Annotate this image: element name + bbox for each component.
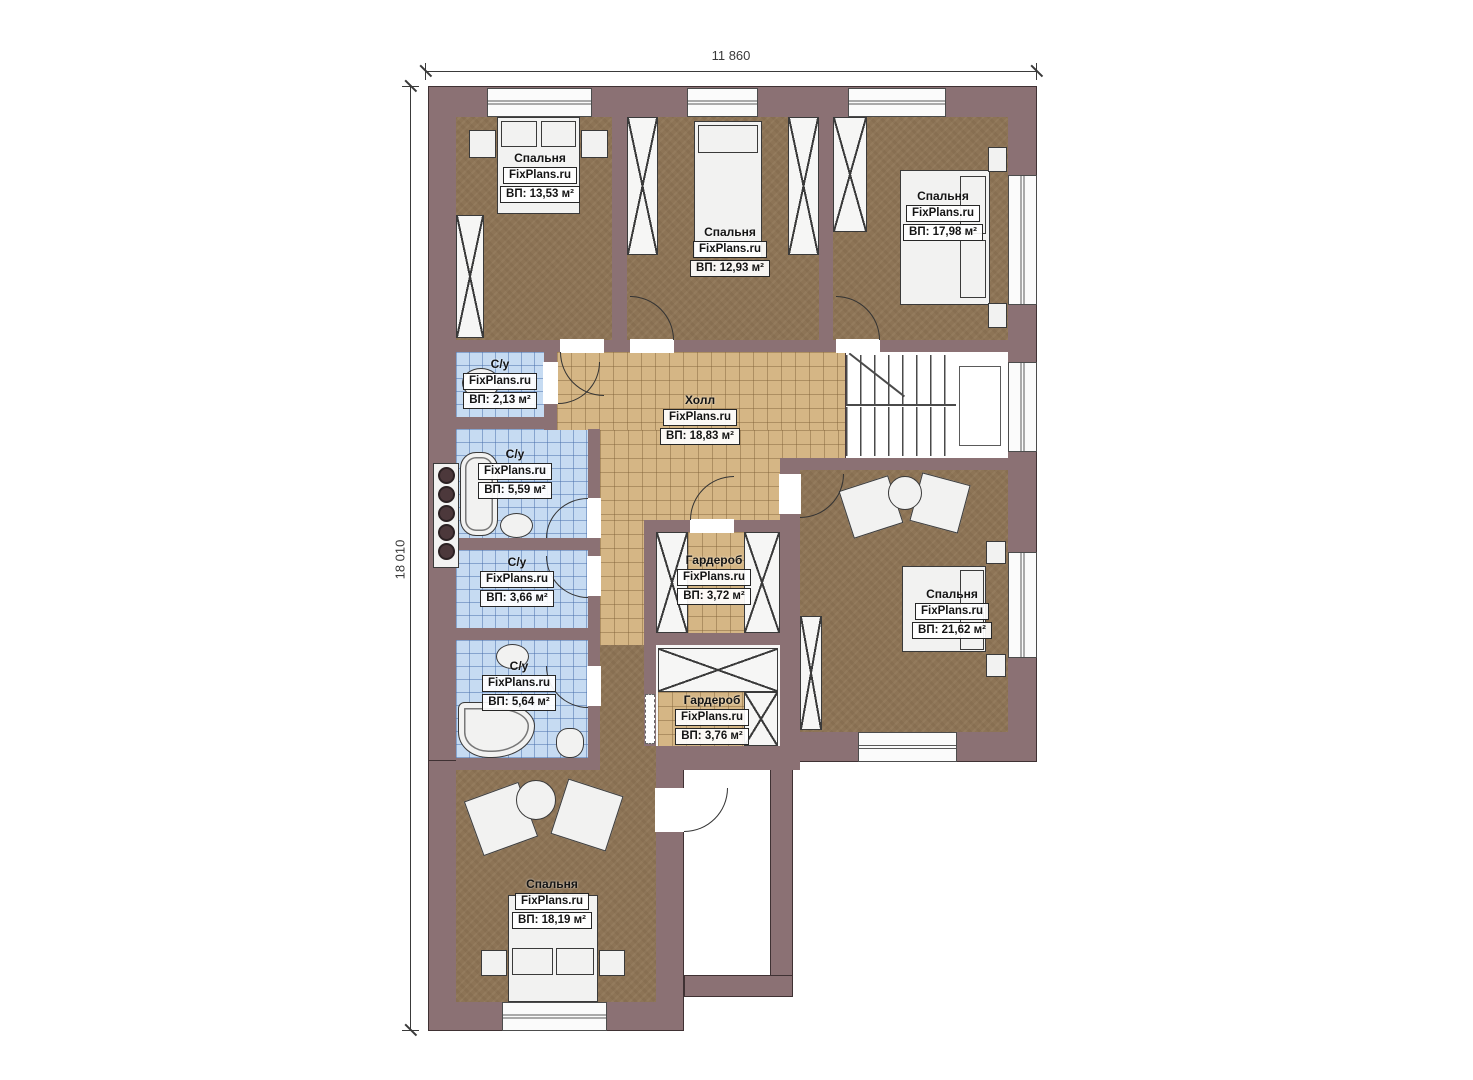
hall-floor-corridor xyxy=(600,520,644,645)
door-gap-bathroom2 xyxy=(587,666,601,706)
riser-circle-2 xyxy=(438,486,455,503)
door-arc-porch xyxy=(684,788,728,832)
door-gap-bathroom1 xyxy=(587,498,601,538)
room-label-bathroom-2: С/у FixPlans.ru ВП: 5,64 м² xyxy=(470,660,568,711)
stair-divider xyxy=(846,404,956,406)
wall-wardrobe1-bottom xyxy=(644,633,800,645)
door-gap-bedroom3 xyxy=(836,339,880,353)
room-watermark: FixPlans.ru xyxy=(915,603,989,620)
riser-circle-4 xyxy=(438,524,455,541)
room-name: Спальня xyxy=(526,878,578,891)
floor-plan-canvas: 11 860 18 010 xyxy=(0,0,1473,1080)
room-name: Спальня xyxy=(926,588,978,601)
room-label-bathroom-1: С/у FixPlans.ru ВП: 5,59 м² xyxy=(466,448,564,499)
room-label-wardrobe-2: Гардероб FixPlans.ru ВП: 3,76 м² xyxy=(660,694,764,745)
wardrobe-2-sliding-door xyxy=(645,694,655,744)
riser-circle-3 xyxy=(438,505,455,522)
closet-bedroom-right xyxy=(800,616,822,730)
bed-bottom-pillow-right xyxy=(556,948,594,975)
room-name: Гардероб xyxy=(684,694,741,707)
room-watermark: FixPlans.ru xyxy=(482,675,556,692)
wall-bedrooms-hall xyxy=(456,340,1008,352)
porch-wall-bottom xyxy=(684,975,793,997)
bed-3-pillow-bottom xyxy=(960,240,986,298)
bed-2-pillow xyxy=(698,125,758,153)
stair-flight-lower xyxy=(846,407,956,456)
room-name: Спальня xyxy=(917,190,969,203)
table-right xyxy=(888,476,922,510)
bed-bottom-pillow-left xyxy=(512,948,553,975)
room-area: ВП: 3,66 м² xyxy=(480,590,554,607)
window-bottom-main xyxy=(858,732,957,762)
room-name: Спальня xyxy=(704,226,756,239)
room-label-wc-2: С/у FixPlans.ru ВП: 3,66 м² xyxy=(468,556,566,607)
room-label-bedroom-bottom: Спальня FixPlans.ru ВП: 18,19 м² xyxy=(502,878,602,929)
nightstand-3-top xyxy=(988,147,1007,172)
room-label-bedroom-top-right: Спальня FixPlans.ru ВП: 17,98 м² xyxy=(890,190,996,241)
dimension-left-line xyxy=(410,86,411,1031)
window-top-1 xyxy=(487,88,592,117)
room-watermark: FixPlans.ru xyxy=(677,569,751,586)
room-name: Холл xyxy=(685,394,715,407)
table-bottom xyxy=(516,780,556,820)
wall-wc2-bath2 xyxy=(456,628,600,640)
room-area: ВП: 3,72 м² xyxy=(677,588,751,605)
porch-wall-vertical xyxy=(770,762,793,997)
room-area: ВП: 5,64 м² xyxy=(482,694,556,711)
room-area: ВП: 3,76 м² xyxy=(675,728,749,745)
wall-bedroom1-2 xyxy=(612,117,627,352)
dimension-left-label: 18 010 xyxy=(393,525,408,595)
room-name: С/у xyxy=(510,660,529,673)
window-top-3 xyxy=(848,88,946,117)
room-area: ВП: 18,19 м² xyxy=(512,912,592,929)
nightstand-bottom-left xyxy=(481,950,507,976)
closet-bedroom2-left xyxy=(627,117,658,255)
window-right-stairs xyxy=(1008,362,1037,452)
room-label-wc-small: С/у FixPlans.ru ВП: 2,13 м² xyxy=(452,358,548,409)
door-gap-wardrobe1 xyxy=(690,519,734,533)
stair-railing xyxy=(959,366,1001,446)
door-gap-bedroom2 xyxy=(630,339,674,353)
wall-wardrobe2-bottom xyxy=(656,746,800,770)
room-name: С/у xyxy=(508,556,527,569)
bed-1-pillow-right xyxy=(541,121,576,147)
room-watermark: FixPlans.ru xyxy=(693,241,767,258)
staircase xyxy=(845,352,1008,458)
room-area: ВП: 5,59 м² xyxy=(478,482,552,499)
wall-stairs-bedroom-right xyxy=(780,458,1008,470)
wall-bathrooms-right xyxy=(588,429,600,770)
room-watermark: FixPlans.ru xyxy=(515,893,589,910)
door-gap-porch xyxy=(655,788,685,832)
window-top-2 xyxy=(687,88,758,117)
room-watermark: FixPlans.ru xyxy=(463,373,537,390)
room-watermark: FixPlans.ru xyxy=(675,709,749,726)
nightstand-right-top xyxy=(986,541,1006,564)
room-name: С/у xyxy=(506,448,525,461)
room-label-bedroom-top-middle: Спальня FixPlans.ru ВП: 12,93 м² xyxy=(678,226,782,277)
room-area: ВП: 12,93 м² xyxy=(690,260,770,277)
wall-wc-small-bottom xyxy=(456,417,557,429)
wall-bath1-wc2 xyxy=(456,538,588,550)
closet-bedroom3 xyxy=(833,117,867,232)
window-right-bedroom xyxy=(1008,552,1037,658)
room-area: ВП: 17,98 м² xyxy=(903,224,983,241)
room-watermark: FixPlans.ru xyxy=(478,463,552,480)
riser-circle-1 xyxy=(438,467,455,484)
riser-circle-5 xyxy=(438,543,455,560)
room-watermark: FixPlans.ru xyxy=(480,571,554,588)
closet-bedroom1 xyxy=(456,215,484,338)
room-label-bedroom-right: Спальня FixPlans.ru ВП: 21,62 м² xyxy=(898,588,1006,639)
toilet xyxy=(556,728,584,758)
nightstand-right-bottom xyxy=(986,654,1006,677)
room-area: ВП: 18,83 м² xyxy=(660,428,740,445)
dimension-top-line xyxy=(425,71,1037,72)
closet-bedroom2-right xyxy=(788,117,819,255)
sink-bathroom-1 xyxy=(500,513,533,538)
room-watermark: FixPlans.ru xyxy=(503,167,577,184)
window-right-bedroom3 xyxy=(1008,175,1037,305)
nightstand-3-bottom xyxy=(988,303,1007,328)
bed-1-pillow-left xyxy=(501,121,537,147)
nightstand-bottom-right xyxy=(599,950,625,976)
room-name: Спальня xyxy=(514,152,566,165)
wall-bedroom2-3 xyxy=(819,117,833,352)
room-name: Гардероб xyxy=(686,554,743,567)
room-area: ВП: 13,53 м² xyxy=(500,186,580,203)
door-gap-bedroom-right xyxy=(779,474,801,514)
room-label-bedroom-top-left: Спальня FixPlans.ru ВП: 13,53 м² xyxy=(488,152,592,203)
room-area: ВП: 2,13 м² xyxy=(463,392,537,409)
door-gap-bedroom1 xyxy=(560,339,604,353)
wardrobe-2-closet-top xyxy=(658,648,778,692)
door-gap-wc2 xyxy=(587,556,601,596)
room-area: ВП: 21,62 м² xyxy=(912,622,992,639)
wall-bath2-wing xyxy=(456,758,600,770)
dimension-top-label: 11 860 xyxy=(425,48,1037,63)
room-name: С/у xyxy=(491,358,510,371)
room-label-wardrobe-1: Гардероб FixPlans.ru ВП: 3,72 м² xyxy=(662,554,766,605)
window-bottom-wing xyxy=(502,1002,607,1031)
room-watermark: FixPlans.ru xyxy=(663,409,737,426)
room-watermark: FixPlans.ru xyxy=(906,205,980,222)
riser-block xyxy=(433,463,459,568)
room-label-hall: Холл FixPlans.ru ВП: 18,83 м² xyxy=(650,394,750,445)
